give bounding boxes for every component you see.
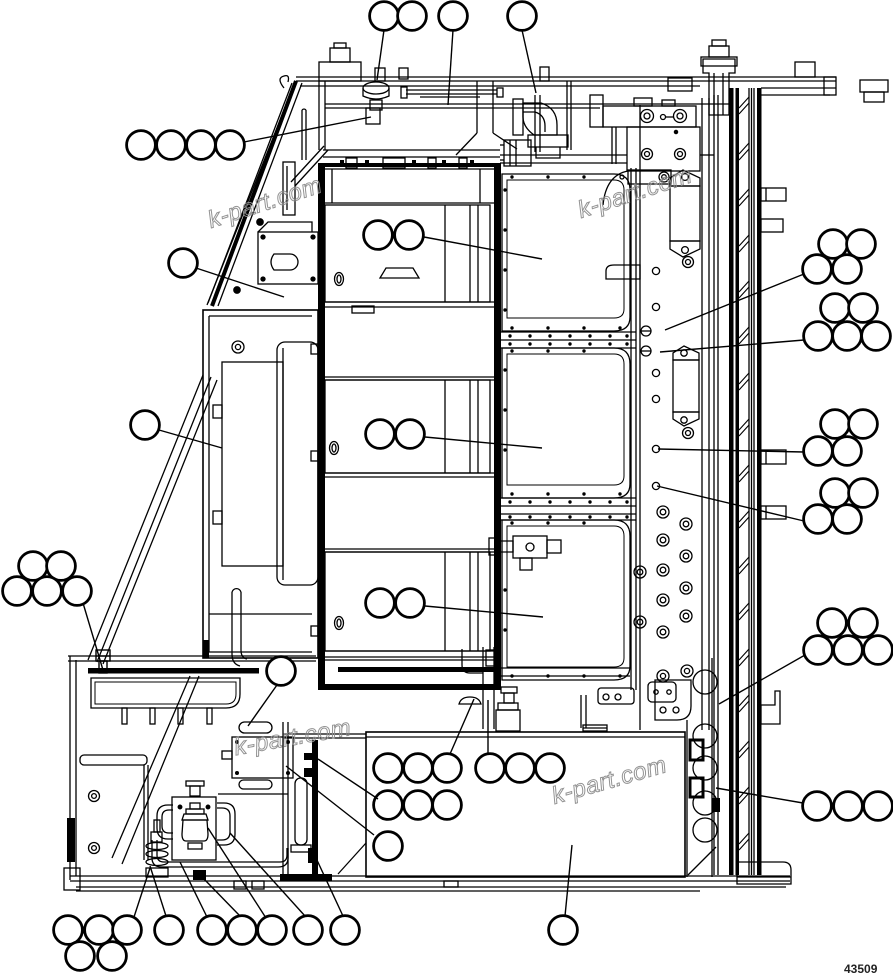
svg-text:43509: 43509 [844,962,878,975]
